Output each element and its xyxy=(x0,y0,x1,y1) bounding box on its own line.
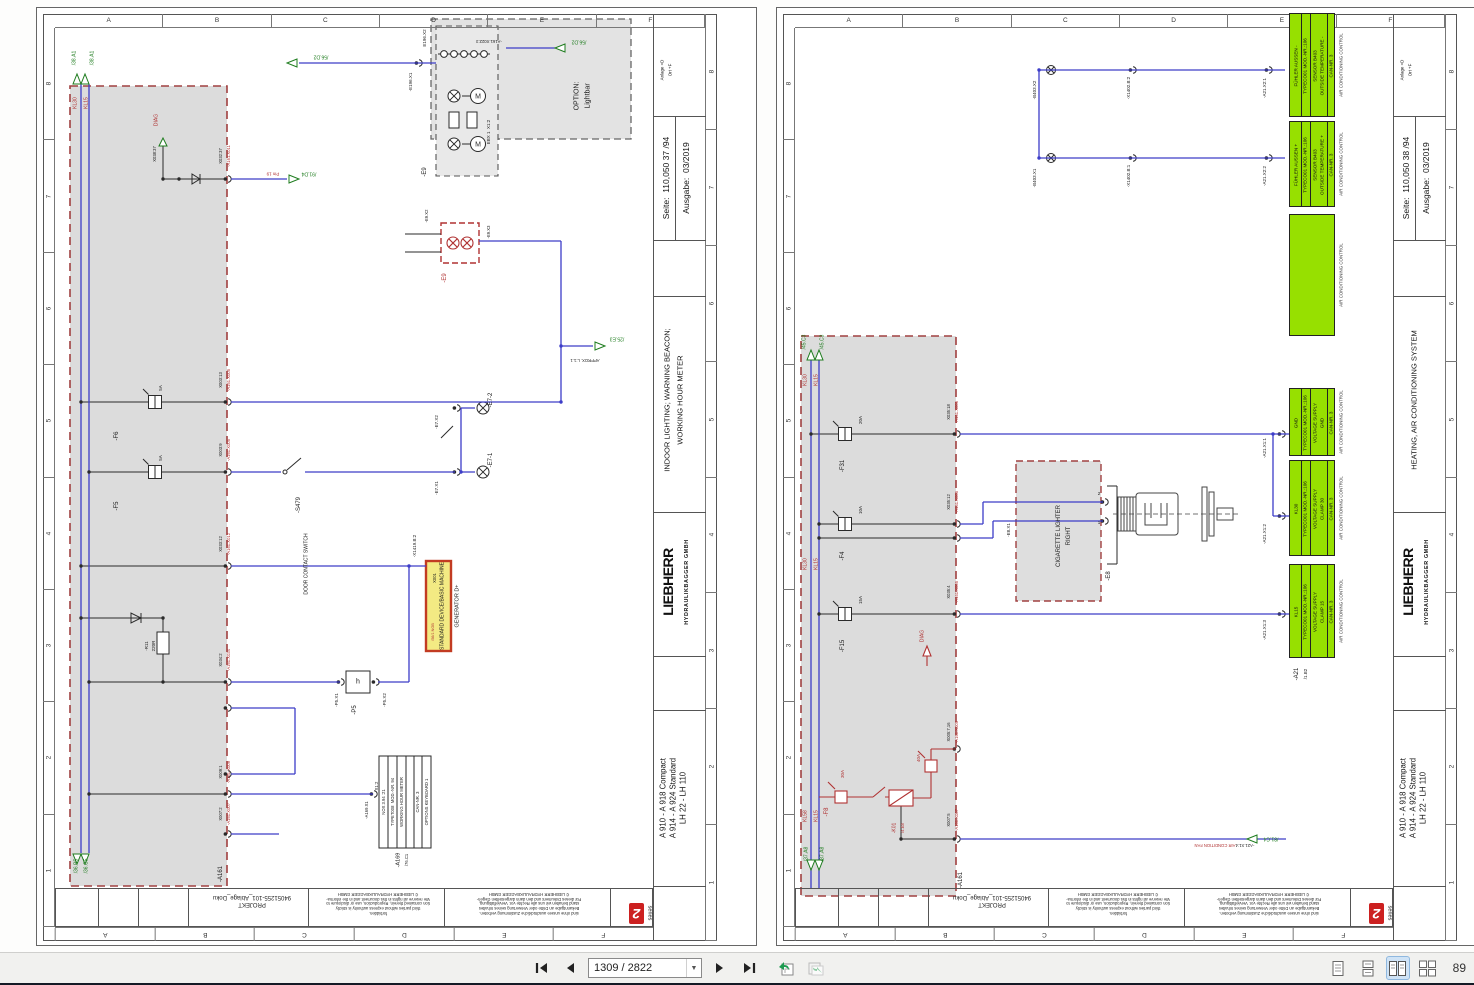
wire-label: DIAG xyxy=(921,630,926,642)
wire-label: OPTIONS KEYBOARD 1 xyxy=(425,779,429,826)
wire-label: /81.C4 xyxy=(1264,836,1279,841)
wire-label: /56/1 NGB xyxy=(432,623,436,641)
wire-label: -A161.X005 xyxy=(955,491,959,513)
wire-label: Pin 19 xyxy=(267,171,280,176)
wire-label: /38.A1 xyxy=(91,51,96,65)
wire-label: -P5 xyxy=(352,705,358,714)
wire-label: -A161.X005 xyxy=(227,439,231,461)
wire-label: -B403.X2 xyxy=(1033,81,1038,100)
wire-label: X032:37 xyxy=(219,148,223,164)
page-number-input[interactable] xyxy=(589,960,686,976)
wire-label: -A21.X1:4 xyxy=(1236,843,1255,847)
wire-label: -A161.X009 xyxy=(227,761,231,783)
wire-label: X007:5 xyxy=(947,813,951,826)
wire-label: E196.X2 xyxy=(423,29,428,46)
wire-label: -E7-1 xyxy=(488,453,494,468)
wire-label: -E196.X1 xyxy=(409,73,414,92)
wire-label: -A161.X005 xyxy=(955,721,959,743)
wire-label: 30A xyxy=(841,770,846,778)
wire-label: -A21.X1:3 xyxy=(1263,620,1268,640)
wire-label: 220R xyxy=(152,641,157,652)
wire-label: X038:37 xyxy=(153,146,157,162)
wire-label: -E7.X2 xyxy=(435,415,440,429)
wire-label: Lightbar xyxy=(585,83,592,108)
wire-label: -A161.X005 xyxy=(955,401,959,423)
wire-label: STANDARD DEVICE/BASIC MACHINE xyxy=(441,562,446,650)
wire-label: 10A xyxy=(859,506,864,514)
wire-label: X003:13 xyxy=(219,372,223,388)
wire-label: 5A xyxy=(159,385,164,391)
wire-label: -E9 xyxy=(442,273,448,282)
wire-label: 5A xyxy=(159,455,164,461)
wire-label: -X1419.B:2 xyxy=(413,535,418,558)
zoom-level-label: 89 xyxy=(1453,961,1466,975)
wire-label: 2 xyxy=(1098,492,1101,497)
wire-label: -E9.X2 xyxy=(425,210,429,223)
wire-label: -A21 xyxy=(1294,668,1300,681)
wire-label: KL15 xyxy=(815,810,820,822)
wire-label: /56.D2 xyxy=(572,39,587,44)
wire-label: -A169.X1 xyxy=(365,801,369,818)
wire-label: -P5.X2 xyxy=(383,693,388,707)
wire-label: -A21.X2:2 xyxy=(1263,166,1268,186)
wire-label: -P5.X1 xyxy=(335,693,340,707)
wire-label: 20A xyxy=(859,416,864,424)
wire-label: DOOR CONTACT SWITCH xyxy=(305,533,310,594)
wire-label: X033:12 xyxy=(219,536,223,552)
wire-label: -A161 xyxy=(958,872,964,888)
wire-label: /1.B2 xyxy=(1304,669,1309,680)
last-page-button[interactable] xyxy=(738,957,760,979)
wire-label: -E7.X1 xyxy=(435,481,440,495)
wire-label: /38.A1 xyxy=(73,51,78,65)
wire-label: -E8.X1 xyxy=(1007,523,1012,537)
wire-label: -F6 xyxy=(114,432,120,441)
wire-label: X001 xyxy=(433,573,437,583)
wire-label: KL15 xyxy=(815,558,820,570)
wire-label: X009:1 xyxy=(219,765,223,778)
next-view-button[interactable] xyxy=(804,957,826,979)
wire-label: -A21.X2:1 xyxy=(1263,78,1268,98)
schematic-sheet-left: ABCDEF ABCDEF 87654321 87654321 xyxy=(36,7,757,946)
wire-label: -S479 xyxy=(296,497,302,513)
wire-label: /91.D4 xyxy=(302,171,317,176)
wire-label: -A21.X1:1 xyxy=(1263,438,1268,458)
wire-label: X035:4 xyxy=(947,585,951,598)
next-page-button[interactable] xyxy=(709,957,731,979)
wire-label: RIGHT xyxy=(1066,527,1072,546)
wire-label: X035:18 xyxy=(947,404,951,420)
wire-label: -A161.X007 xyxy=(955,809,959,831)
wire-label: -A161.X022:3 xyxy=(476,39,502,43)
wire-label: X034:2 xyxy=(219,653,223,666)
wire-label: EBX 1 X1:2 xyxy=(487,120,492,145)
wire-label: TYPET008 MOD.-NR. 94 xyxy=(391,778,395,826)
wire-label: NOX 3.94 :21 xyxy=(382,789,386,814)
wire-label: X007:2 xyxy=(219,807,223,820)
continuous-view-button[interactable] xyxy=(1357,957,1379,979)
viewer-toolbar: ▼ 89 xyxy=(0,952,1474,983)
wire-label: -E8 xyxy=(1106,571,1112,580)
previous-view-button[interactable] xyxy=(775,957,797,979)
wire-label: /4.E8 xyxy=(901,823,905,833)
wire-label: KL30 xyxy=(804,374,809,386)
wire-label: -A161.X011 xyxy=(227,145,231,167)
wire-label: -A161 xyxy=(218,866,224,882)
wire-label: -E9.X3 xyxy=(487,226,491,239)
wire-label: /37.A8 xyxy=(821,847,826,861)
wire-label: KL30 xyxy=(804,558,809,570)
wire-label: -A161.X005 xyxy=(227,369,231,391)
wire-label: -A161.X034 xyxy=(227,649,231,671)
wire-label: AIR CONDITION FAN xyxy=(1195,843,1236,847)
document-canvas[interactable]: ABCDEF ABCDEF 87654321 87654321 xyxy=(0,0,1474,952)
facing-view-button[interactable] xyxy=(1387,957,1409,979)
wire-label: -X1402.B:1 xyxy=(1127,165,1132,188)
wire-label: KL58 xyxy=(804,810,809,822)
wire-label: -F8 xyxy=(824,808,830,817)
wire-label: X035:12 xyxy=(947,494,951,510)
wire-label: h xyxy=(356,679,360,686)
wire-label: -B403.X1 xyxy=(1033,169,1038,188)
wire-label: /45.C3 xyxy=(821,335,826,350)
wire-label: DIAG xyxy=(155,114,160,126)
wire-label: GENERATOR D+ xyxy=(455,584,461,627)
schematic-labels: /45.C3/45.C3KL30KL15KL30KL15-F3120A-F410… xyxy=(777,8,1474,947)
wire-label: -A161.X012 xyxy=(227,533,231,555)
wire-label: APPROX. L:1.1 xyxy=(570,358,599,362)
wire-label: WORKING HOUR METER xyxy=(400,777,404,827)
wire-label: -A161.X007 xyxy=(227,803,231,825)
wire-label: -A169 xyxy=(396,853,402,868)
wire-label: 15A xyxy=(859,596,864,604)
wire-label: -F5 xyxy=(114,502,120,511)
page-number-box: ▼ xyxy=(588,958,702,978)
wire-label: CAN-NR. 3 xyxy=(416,792,420,813)
schematic-sheet-right: ABCDEF ABCDEF 87654321 87654321 xyxy=(776,7,1474,946)
single-page-view-button[interactable] xyxy=(1327,957,1349,979)
wire-label: X1:2 xyxy=(375,782,379,791)
wire-label: KL15 xyxy=(815,374,820,386)
schematic-labels: /38.A1/38.A1KL30KL15DIAGX038:37X032:37-A… xyxy=(37,8,757,947)
wire-label: -E9 xyxy=(422,167,428,176)
wire-label: 1 xyxy=(1098,521,1101,526)
wire-label: -F15 xyxy=(840,640,846,652)
facing-continuous-view-button[interactable] xyxy=(1417,957,1439,979)
wire-label: X005:7,16 xyxy=(947,722,951,741)
wire-label: -E7-2 xyxy=(488,393,494,408)
wire-label: -F4 xyxy=(840,552,846,561)
wire-label: KL15 xyxy=(85,97,90,109)
wire-label: /76.C1 xyxy=(405,854,409,866)
wire-label: /37.A8 xyxy=(805,847,810,861)
wire-label: /25.E3 xyxy=(610,336,624,341)
wire-label: /36.C5 xyxy=(85,859,90,874)
wire-label: /45.C3 xyxy=(803,335,808,350)
wire-label: -A161.X005 xyxy=(955,581,959,603)
wire-label: 40A xyxy=(917,754,922,762)
wire-label: -R11 xyxy=(145,641,150,650)
wire-label: -F31 xyxy=(840,460,846,472)
wire-label: KL30 xyxy=(74,97,79,109)
wire-label: /56.D2 xyxy=(314,54,329,59)
wire-label: -A21.X1:2 xyxy=(1263,524,1268,544)
wire-label: /36.B5 xyxy=(75,859,80,873)
wire-label: OPTION: xyxy=(574,82,581,111)
wire-label: -K01 xyxy=(893,823,898,834)
wire-label: CIGARETTE LIGHTER xyxy=(1056,505,1062,567)
first-page-button[interactable] xyxy=(530,957,552,979)
page-dropdown-caret[interactable]: ▼ xyxy=(686,959,701,977)
previous-page-button[interactable] xyxy=(559,957,581,979)
wire-label: -X1402.B:2 xyxy=(1127,77,1132,100)
wire-label: X003:9 xyxy=(219,443,223,456)
